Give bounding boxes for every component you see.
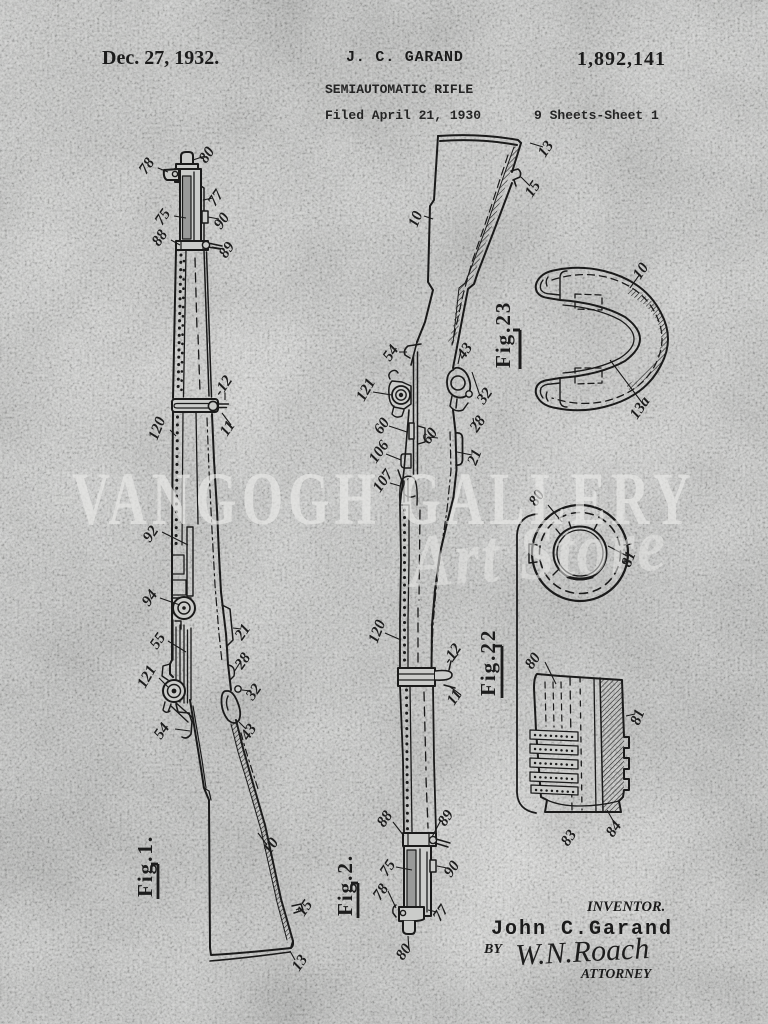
svg-text:Fig.23: Fig.23 (491, 301, 515, 368)
svg-text:Fig.1.: Fig.1. (133, 835, 157, 897)
svg-text:9 Sheets-Sheet 1: 9 Sheets-Sheet 1 (534, 108, 659, 123)
svg-text:SEMIAUTOMATIC RIFLE: SEMIAUTOMATIC RIFLE (325, 82, 473, 97)
svg-text:Fig.22: Fig.22 (476, 629, 500, 696)
svg-text:Filed April 21, 1930: Filed April 21, 1930 (325, 108, 481, 123)
svg-text:BY: BY (483, 942, 503, 957)
svg-text:1,892,141: 1,892,141 (577, 48, 666, 70)
svg-text:J. C. GARAND: J. C. GARAND (346, 49, 464, 66)
svg-text:ATTORNEY: ATTORNEY (580, 966, 653, 981)
svg-text:INVENTOR.: INVENTOR. (586, 899, 665, 915)
svg-text:Dec. 27, 1932.: Dec. 27, 1932. (102, 47, 219, 69)
svg-text:Fig.2.: Fig.2. (333, 854, 357, 916)
